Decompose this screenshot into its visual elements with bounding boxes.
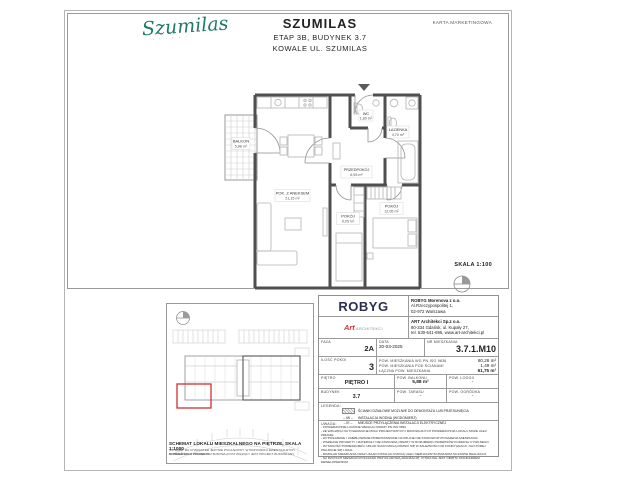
pow-laczna-value: 61,75 m² <box>478 368 496 373</box>
floor-plan-drawing: BALKON 5,88 m² POK. Z ANEKSEM 21,15 m² P… <box>130 83 440 298</box>
svg-text:12,05 m²: 12,05 m² <box>384 210 399 214</box>
art-architekci-logo: Art ARCHITEKCI <box>344 323 383 332</box>
row-architect: Art ARCHITEKCI ART Architekci Sp.z o.o. … <box>319 317 498 338</box>
room-label-wc: WC <box>363 112 370 116</box>
developer-address-2: 02-972 Warszawa <box>411 309 496 315</box>
uwaga-line: - NA RZUTACH MIESZKAŃ POKAZANO PRZYKŁADO… <box>321 457 496 465</box>
ilosc-pokoi-value: 3 <box>321 362 374 372</box>
budynek-value: 3.7 <box>321 394 392 400</box>
entrance-arrow-icon <box>358 84 370 91</box>
row-areas: ILOŚĆ POKOI 3 POW. MIESZKANIA WG PN-ISO … <box>319 357 498 375</box>
room-label-living: POK. Z ANEKSEM <box>276 191 310 196</box>
svg-text:21,15 m²: 21,15 m² <box>285 197 300 201</box>
svg-text:9,05 m²: 9,05 m² <box>342 220 355 224</box>
marketing-card-page: { "header": { "logo_text": "Szumilas", "… <box>0 0 640 480</box>
loggia-value: - <box>449 380 496 386</box>
hatch-swatch-icon <box>342 408 355 414</box>
nr-value: 3.7.1.M10 <box>427 344 496 354</box>
row-faza-data-nr: FAZA 2A DATA 20-03-2025 NR MIESZKANIA 3.… <box>319 339 498 357</box>
room-label-balkon: BALKON <box>233 139 249 144</box>
architect-address-2: tel. 530-641-696, www.art-architekci.pl <box>411 330 496 336</box>
north-compass-icon <box>452 274 472 294</box>
row-budynek: BUDYNEK 3.7 POW. TARASU - POW. OGRÓDKA - <box>319 389 498 403</box>
subtitle-address: KOWALE UL. SZUMILAS <box>230 44 410 53</box>
site-plan-drawing <box>167 304 311 461</box>
robyg-logo: ROBYG <box>338 299 388 314</box>
row-legend: LEGENDA: ŚCIANKI DZIAŁOWE MOŻLIWE DO DEM… <box>319 403 498 421</box>
room-label-bathroom: ŁAZIENKA <box>389 128 408 132</box>
balkon-value: 5,88 m² <box>397 380 444 386</box>
data-value: 20-03-2025 <box>379 344 422 349</box>
faza-value: 2A <box>321 344 374 354</box>
pietro-value: PIĘTRO I <box>321 380 392 386</box>
row-pietro: PIĘTRO PIĘTRO I POW. BALKONU 5,88 m² POW… <box>319 375 498 389</box>
svg-text:5,88 m²: 5,88 m² <box>235 145 248 149</box>
svg-text:1,80 m²: 1,80 m² <box>360 117 373 121</box>
svg-text:6,95 m²: 6,95 m² <box>350 173 363 177</box>
site-plan-note: SCHEMATEM, A PROJEKTEM BUDOWLANYM WIĄŻĄC… <box>169 452 310 456</box>
legend-item-text: ŚCIANKI DZIAŁOWE MOŻLIWE DO DEMONTAŻU LU… <box>358 409 469 414</box>
room-label-hall: PRZEDPOKÓJ <box>344 167 370 172</box>
site-compass-icon <box>177 312 190 325</box>
site-building <box>185 356 300 400</box>
ogrodek-value: - <box>449 394 496 400</box>
taras-value: - <box>397 394 444 400</box>
szumilas-brand-logo: Szumilas · · · · · · <box>141 14 213 43</box>
furniture <box>257 97 418 281</box>
room-label-bedroom1: POKÓJ <box>341 214 355 219</box>
pow-laczna-label: ŁĄCZNA POW. MIESZKANIA <box>379 369 431 373</box>
subtitle-etap: ETAP 3B, BUDYNEK 3.7 <box>230 33 410 42</box>
karta-marketingowa-label: KARTA MARKETINGOWA <box>380 20 492 25</box>
row-uwaga: UWAGA: - POWIERZCHNIE LICZONE WEDŁUG NOR… <box>319 421 498 466</box>
room-label-bedroom2: POKÓJ <box>385 204 399 209</box>
row-developer: ROBYG ROBYG Morenova z o.o. Al.Rzeczypos… <box>319 296 498 317</box>
svg-text:4,70 m²: 4,70 m² <box>392 133 405 137</box>
info-table: ROBYG ROBYG Morenova z o.o. Al.Rzeczypos… <box>318 295 499 457</box>
site-plan-box <box>166 303 314 464</box>
scale-label: SKALA 1:100 <box>430 262 492 268</box>
